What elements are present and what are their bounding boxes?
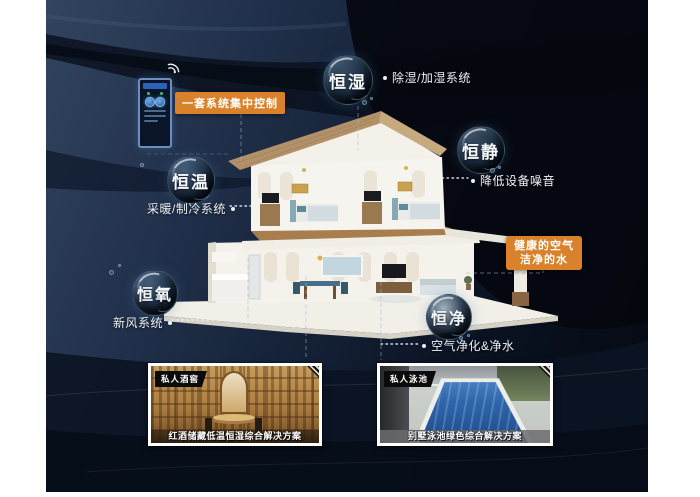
bullet-dot [422,344,426,348]
wall-controller-device [138,78,172,148]
callout-line1: 健康的空气 [510,239,578,253]
photo-tag: 私人泳池 [384,371,436,387]
mini-bubble [109,270,114,275]
bubble-label: 恒湿 [329,68,367,93]
poster-artwork: 一套系统集中控制 健康的空气 洁净的水 恒湿 恒静 恒温 恒氧 恒净 [46,0,648,492]
controller-row [144,115,166,117]
annotation-text: 新风系统 [113,314,163,331]
bubble-constant-temperature: 恒温 [167,156,215,204]
annotation-dehumidify: 除湿/加湿系统 [383,69,471,86]
poster-page: 一套系统集中控制 健康的空气 洁净的水 恒湿 恒静 恒温 恒氧 恒净 [0,0,700,497]
photo-wine-cellar: 私人酒窖 红酒储藏低温恒湿综合解决方案 [148,363,322,446]
mini-bubble [362,100,367,105]
callout-central-control: 一套系统集中控制 [175,92,285,114]
callout-healthy-air-water: 健康的空气 洁净的水 [506,236,582,270]
bubble-label: 恒氧 [137,281,173,305]
annotation-heating: 采暖/制冷系统 [147,200,235,217]
mini-bubble [498,166,501,169]
photo-private-pool: 私人泳池 别墅泳池绿色综合解决方案 [377,363,553,446]
wifi-icon [164,60,182,76]
annotation-fresh-air: 新风系统 [113,314,172,331]
photo-caption: 红酒储藏低温恒湿综合解决方案 [151,430,319,443]
callout-line2: 洁净的水 [510,253,578,267]
bullet-dot [471,179,475,183]
bubble-label: 恒静 [462,138,500,163]
photo-tag: 私人酒窖 [155,371,207,387]
annotation-text: 空气净化&净水 [431,337,515,354]
bubble-constant-purity: 恒净 [426,294,472,340]
mini-bubble [118,264,121,267]
wine-arch-cabinet [220,371,249,414]
controller-dial-left [145,97,155,107]
controller-row [144,110,166,112]
bubble-label: 恒净 [431,305,467,329]
mini-bubble [140,163,144,167]
controller-status-leds [143,92,167,95]
controller-screen-header [143,83,167,89]
annotation-text: 降低设备噪音 [480,172,555,189]
controller-dials [143,97,167,107]
annotation-noise: 降低设备噪音 [471,172,555,189]
annotation-text: 除湿/加湿系统 [392,69,471,86]
mini-bubble [370,97,373,100]
annotation-purification: 空气净化&净水 [422,337,515,354]
annotation-text: 采暖/制冷系统 [147,200,226,217]
bullet-dot [168,321,172,325]
controller-row [144,120,158,122]
bubble-constant-humidity: 恒湿 [323,55,373,105]
wine-table [213,414,255,421]
bubble-constant-oxygen: 恒氧 [132,270,178,316]
bullet-dot [231,207,235,211]
photo-caption: 别墅泳池绿色综合解决方案 [380,430,550,443]
controller-dial-right [155,97,165,107]
bullet-dot [383,76,387,80]
callout-text: 一套系统集中控制 [182,95,278,111]
bubble-label: 恒温 [172,168,210,193]
